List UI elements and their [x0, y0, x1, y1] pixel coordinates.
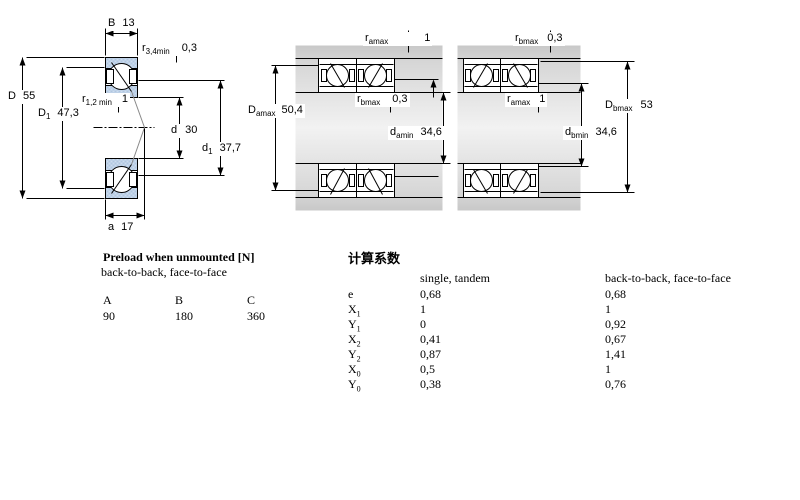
factor-row: X00,51 [0, 362, 800, 377]
factor-single-value: 0,38 [420, 377, 441, 392]
factor-label: Y0 [348, 377, 361, 393]
factor-paired-value: 0,67 [605, 332, 626, 347]
dim-label-D: D55 [6, 90, 37, 104]
cage [494, 70, 499, 82]
ball [509, 65, 531, 87]
dimension-B [106, 29, 138, 56]
dim-label-damin: damin34,6 [388, 126, 444, 140]
bearing-pair-top [319, 59, 395, 93]
factor-label: Y1 [348, 317, 361, 333]
preload-title: Preload when unmounted [N] [103, 250, 254, 265]
cage [130, 173, 137, 187]
cage [387, 70, 392, 82]
pair-back-to-back-drawing [272, 31, 451, 211]
factor-row: Y00,380,76 [0, 377, 800, 392]
factor-paired-value: 1,41 [605, 347, 626, 362]
dim-label-D1: D147,3 [36, 107, 81, 121]
pair-face-to-face-drawing [458, 31, 635, 211]
factor-single-value: 0,68 [420, 287, 441, 302]
cage [322, 70, 327, 82]
factor-label: X2 [348, 332, 361, 348]
cage [350, 175, 355, 187]
factor-paired-value: 0,68 [605, 287, 626, 302]
ball [471, 65, 493, 87]
dim-label-Dbmax: Dbmax53 [603, 99, 655, 113]
dim-label-r34min: r3,4min0,3 [140, 42, 199, 56]
factor-single-value: 0,87 [420, 347, 441, 362]
dim-label-rbmax-a: rbmax0,3 [355, 93, 410, 107]
cage [494, 175, 499, 187]
factor-paired-value: 0,76 [605, 377, 626, 392]
dim-label-ramax-b: ramax1 [505, 93, 547, 107]
factor-label: e [348, 287, 353, 303]
factor-row: Y20,871,41 [0, 347, 800, 362]
factor-single-value: 1 [420, 302, 426, 317]
cage [322, 175, 327, 187]
cage [107, 173, 114, 187]
dimension-Damax [273, 66, 279, 191]
dim-label-ramax-a: ramax1 [363, 32, 432, 46]
cage [359, 70, 364, 82]
cage [130, 70, 137, 84]
factor-row: Y100,92 [0, 317, 800, 332]
factor-paired-value: 0,92 [605, 317, 626, 332]
cage [503, 175, 508, 187]
ball [509, 170, 531, 192]
dim-label-a: a17 [106, 221, 135, 235]
cage [107, 70, 114, 84]
factors-col2-header: back-to-back, face-to-face [605, 271, 731, 286]
factor-single-value: 0,5 [420, 362, 435, 377]
factor-label: X0 [348, 362, 361, 378]
preload-subtitle: back-to-back, face-to-face [101, 265, 227, 280]
cage [531, 70, 536, 82]
factor-row: X20,410,67 [0, 332, 800, 347]
cage [503, 70, 508, 82]
factor-label: Y2 [348, 347, 361, 363]
ball [471, 170, 493, 192]
cage [387, 175, 392, 187]
factor-row: X111 [0, 302, 800, 317]
factors-col1-header: single, tandem [420, 271, 490, 286]
cage [466, 175, 471, 187]
factor-row: e0,680,68 [0, 287, 800, 302]
cage [531, 175, 536, 187]
bearing-datasheet: B13 r3,4min0,3 D55 r1,2 min1 D147,3 d30 … [0, 0, 800, 500]
cage [466, 70, 471, 82]
dim-label-rbmax-b: rbmax0,3 [513, 32, 565, 46]
dim-label-B: B13 [106, 17, 137, 31]
dim-label-d: d30 [169, 124, 199, 138]
factor-label: X1 [348, 302, 361, 318]
cage [359, 175, 364, 187]
dim-label-r12min: r1,2 min1 [80, 93, 130, 107]
bearing-pair-bottom [464, 164, 539, 198]
factor-single-value: 0 [420, 317, 426, 332]
cage [350, 70, 355, 82]
dimension-Dbmax [625, 62, 631, 193]
dim-label-d1: d137,7 [200, 142, 243, 156]
dim-label-Damax: Damax50,4 [246, 104, 305, 118]
factor-single-value: 0,41 [420, 332, 441, 347]
bearing-section-bottom [106, 128, 145, 199]
dim-label-dbmin: dbmin34,6 [563, 126, 619, 140]
factors-title: 计算系数 [348, 248, 400, 267]
bearing-pair-top [464, 59, 539, 93]
factor-paired-value: 1 [605, 362, 611, 377]
bearing-pair-bottom [319, 164, 395, 198]
factor-paired-value: 1 [605, 302, 611, 317]
